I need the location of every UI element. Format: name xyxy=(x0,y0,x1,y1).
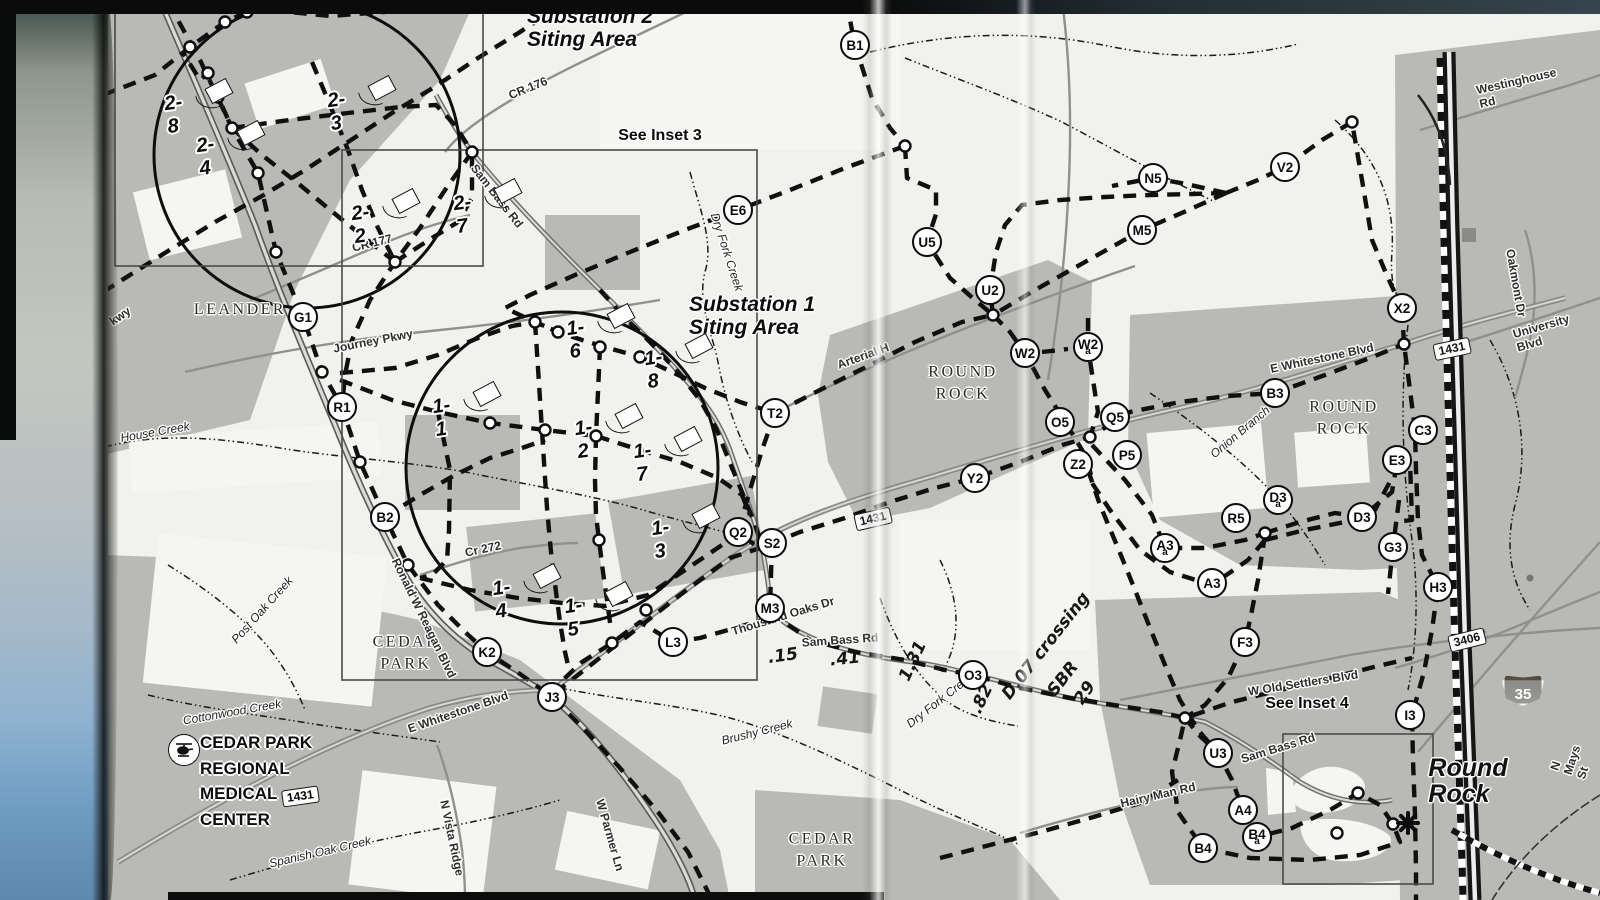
label-title: Substation 1 Siting Area xyxy=(689,293,815,339)
label-bigcity: Round Rock xyxy=(1428,755,1507,808)
scan-bottom-bar xyxy=(168,892,884,900)
label-city: ROUND ROCK xyxy=(928,361,997,404)
route-node-B2: B2 xyxy=(370,502,400,532)
route-node-B4a: B4a xyxy=(1242,822,1272,852)
route-node-F3: F3 xyxy=(1230,627,1260,657)
route-node-R1: R1 xyxy=(327,392,357,422)
route-node-L3: L3 xyxy=(658,627,688,657)
label-inset: See Inset 3 xyxy=(618,127,702,145)
route-node-Q5: Q5 xyxy=(1100,402,1130,432)
route-node-A3: A3 xyxy=(1197,568,1227,598)
route-node-U3: U3 xyxy=(1203,738,1233,768)
route-node-E6: E6 xyxy=(723,195,753,225)
asterisk-marker xyxy=(1395,810,1421,836)
route-node-Y2: Y2 xyxy=(960,463,990,493)
route-node-E3: E3 xyxy=(1382,445,1412,475)
label-city: ROUND ROCK xyxy=(1309,396,1378,439)
route-node-U2: U2 xyxy=(975,275,1005,305)
route-node-M5: M5 xyxy=(1127,215,1157,245)
route-node-U5: U5 xyxy=(912,227,942,257)
route-node-G1: G1 xyxy=(288,302,318,332)
label-city: LEANDER xyxy=(194,299,286,321)
route-node-N5: N5 xyxy=(1138,163,1168,193)
label-inset: See Inset 4 xyxy=(1265,695,1349,713)
route-node-M3: M3 xyxy=(755,593,785,623)
route-node-B3: B3 xyxy=(1260,378,1290,408)
helicopter-icon xyxy=(168,734,200,766)
route-node-B4: B4 xyxy=(1188,833,1218,863)
route-node-G3: G3 xyxy=(1378,532,1408,562)
road-dot xyxy=(1527,575,1534,582)
route-node-T2: T2 xyxy=(760,398,790,428)
route-node-O5: O5 xyxy=(1045,407,1075,437)
route-node-A3a: A3a xyxy=(1150,533,1180,563)
route-node-S2: S2 xyxy=(757,528,787,558)
route-node-W2: W2 xyxy=(1010,338,1040,368)
label-hand: .41 xyxy=(829,647,861,670)
route-node-D3: D3 xyxy=(1347,502,1377,532)
route-node-Q2: Q2 xyxy=(723,517,753,547)
scan-top-bar xyxy=(0,0,1600,14)
label-hand: .15 xyxy=(767,644,800,668)
medical-center-label: CEDAR PARK REGIONAL MEDICAL CENTER xyxy=(200,730,312,832)
interstate-35-number: 35 xyxy=(1515,684,1532,706)
route-node-X2: X2 xyxy=(1387,293,1417,323)
route-node-I3: I3 xyxy=(1395,700,1425,730)
route-node-C3: C3 xyxy=(1408,415,1438,445)
route-node-R5: R5 xyxy=(1221,503,1251,533)
scanned-map-page: B1E6U5N5M5V2U2X2W2W2aG1R1T2O5Q5Z2P5B3C3E… xyxy=(0,0,1600,900)
route-node-Z2: Z2 xyxy=(1063,449,1093,479)
route-node-W2a: W2a xyxy=(1073,332,1103,362)
route-node-V2: V2 xyxy=(1270,152,1300,182)
label-city: CEDAR PARK xyxy=(789,828,856,871)
route-node-B1: B1 xyxy=(840,30,870,60)
route-node-H3: H3 xyxy=(1423,572,1453,602)
route-node-P5: P5 xyxy=(1112,440,1142,470)
route-node-O3: O3 xyxy=(958,660,988,690)
route-node-J3: J3 xyxy=(537,682,567,712)
route-node-K2: K2 xyxy=(472,637,502,667)
route-node-A4: A4 xyxy=(1228,795,1258,825)
route-node-D3a: D3a xyxy=(1263,485,1293,515)
paper-edge-shadow xyxy=(92,0,118,900)
scan-edge-wedge xyxy=(0,10,16,440)
